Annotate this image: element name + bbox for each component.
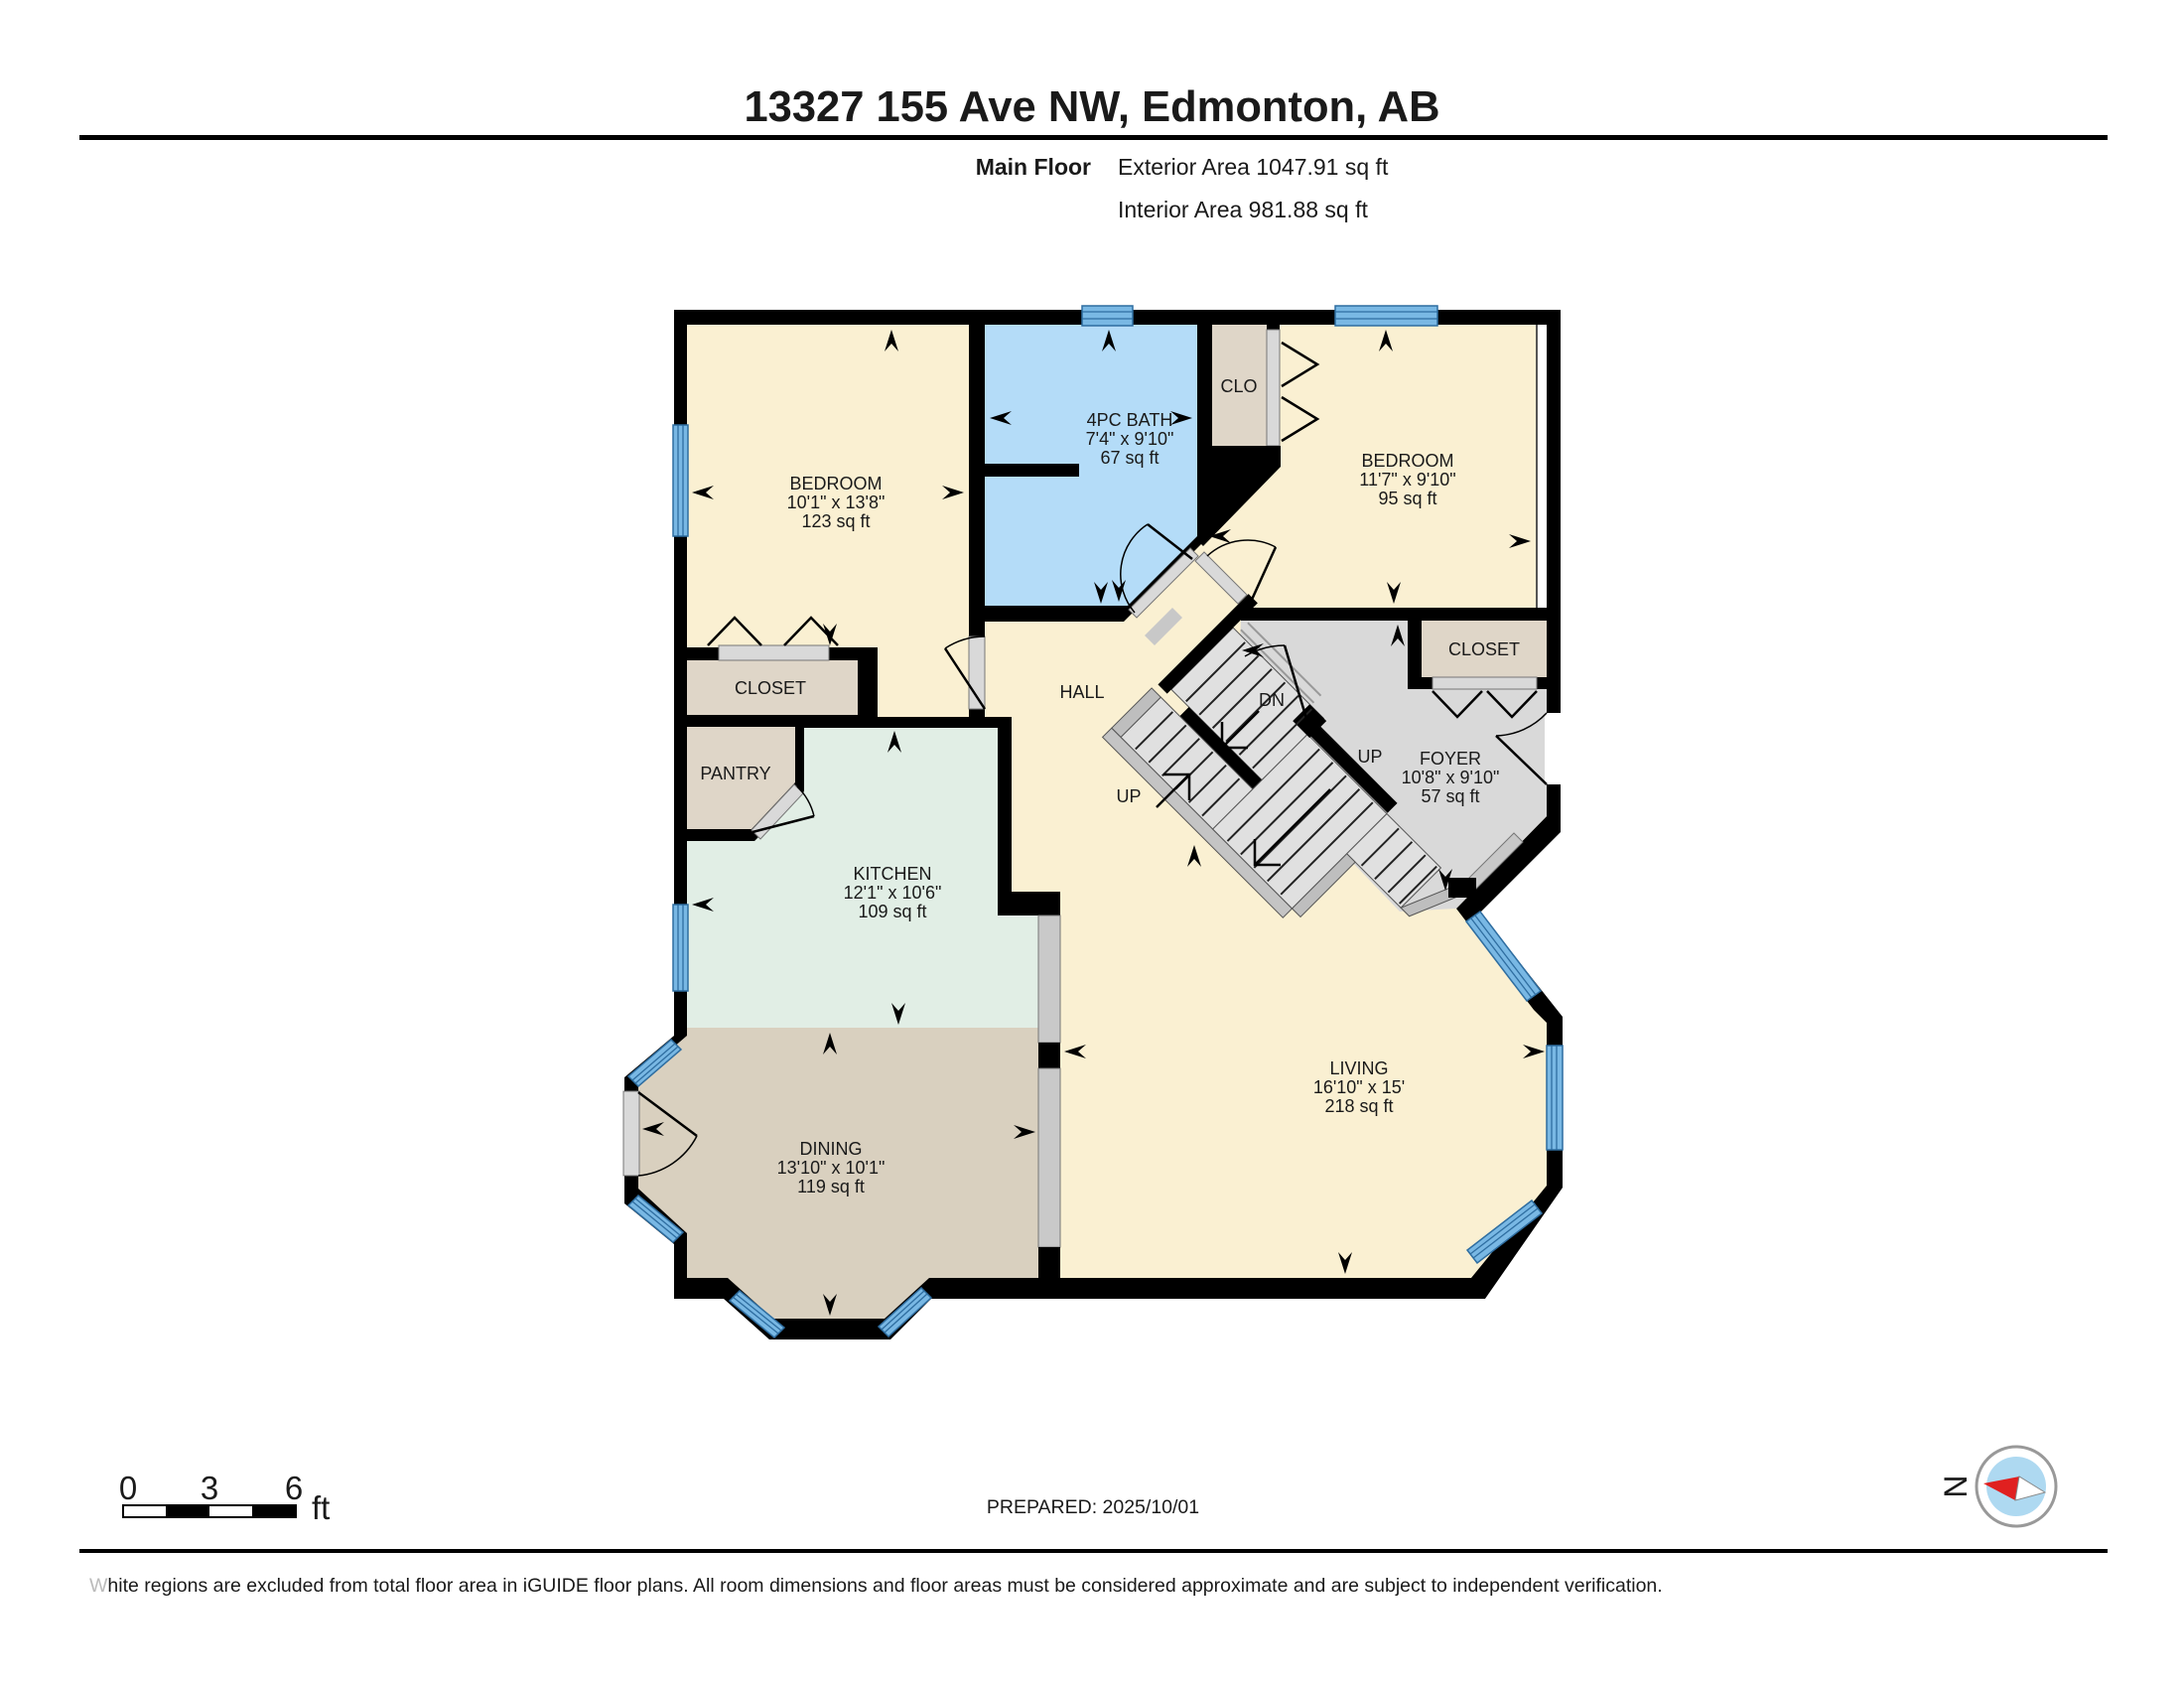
svg-text:LIVING: LIVING (1329, 1058, 1388, 1078)
svg-text:109 sq ft: 109 sq ft (858, 902, 926, 921)
svg-text:DN: DN (1259, 690, 1285, 710)
svg-text:4PC BATH: 4PC BATH (1087, 410, 1173, 430)
svg-text:10'1" x 13'8": 10'1" x 13'8" (787, 492, 886, 512)
svg-text:10'8" x 9'10": 10'8" x 9'10" (1402, 768, 1500, 787)
svg-text:BEDROOM: BEDROOM (789, 474, 882, 493)
svg-text:DINING: DINING (800, 1139, 863, 1159)
svg-text:95 sq ft: 95 sq ft (1378, 489, 1436, 508)
svg-text:57 sq ft: 57 sq ft (1421, 786, 1479, 806)
svg-text:119 sq ft: 119 sq ft (797, 1177, 865, 1196)
svg-text:16'10" x 15': 16'10" x 15' (1313, 1077, 1405, 1097)
svg-text:67 sq ft: 67 sq ft (1100, 448, 1159, 468)
svg-text:N: N (1938, 1475, 1974, 1497)
svg-text:UP: UP (1116, 786, 1141, 806)
svg-text:CLOSET: CLOSET (735, 678, 806, 698)
svg-text:13'10" x 10'1": 13'10" x 10'1" (777, 1158, 886, 1178)
svg-text:0: 0 (119, 1470, 137, 1506)
svg-text:UP: UP (1357, 747, 1382, 767)
svg-text:Main Floor: Main Floor (976, 154, 1091, 180)
svg-text:White regions are excluded fro: White regions are excluded from total fl… (89, 1575, 1663, 1597)
svg-text:PREPARED: 2025/10/01: PREPARED: 2025/10/01 (987, 1496, 1199, 1518)
svg-text:123 sq ft: 123 sq ft (801, 511, 870, 531)
svg-text:13327 155 Ave NW, Edmonton, AB: 13327 155 Ave NW, Edmonton, AB (744, 83, 1439, 131)
svg-text:FOYER: FOYER (1420, 749, 1481, 769)
svg-text:3: 3 (201, 1470, 218, 1506)
svg-text:6: 6 (285, 1470, 303, 1506)
svg-text:ft: ft (312, 1489, 330, 1526)
svg-text:Exterior Area 1047.91 sq ft: Exterior Area 1047.91 sq ft (1118, 154, 1389, 180)
svg-text:HALL: HALL (1059, 682, 1104, 702)
svg-text:11'7" x 9'10": 11'7" x 9'10" (1359, 470, 1455, 490)
svg-text:BEDROOM: BEDROOM (1361, 451, 1453, 471)
svg-text:KITCHEN: KITCHEN (853, 864, 931, 884)
svg-text:12'1" x 10'6": 12'1" x 10'6" (844, 883, 942, 903)
svg-text:7'4" x 9'10": 7'4" x 9'10" (1086, 429, 1174, 449)
svg-text:Interior Area 981.88 sq ft: Interior Area 981.88 sq ft (1118, 197, 1368, 222)
svg-text:218 sq ft: 218 sq ft (1324, 1096, 1393, 1116)
svg-text:CLO: CLO (1220, 376, 1257, 396)
svg-text:CLOSET: CLOSET (1448, 639, 1520, 659)
svg-text:PANTRY: PANTRY (700, 764, 770, 783)
